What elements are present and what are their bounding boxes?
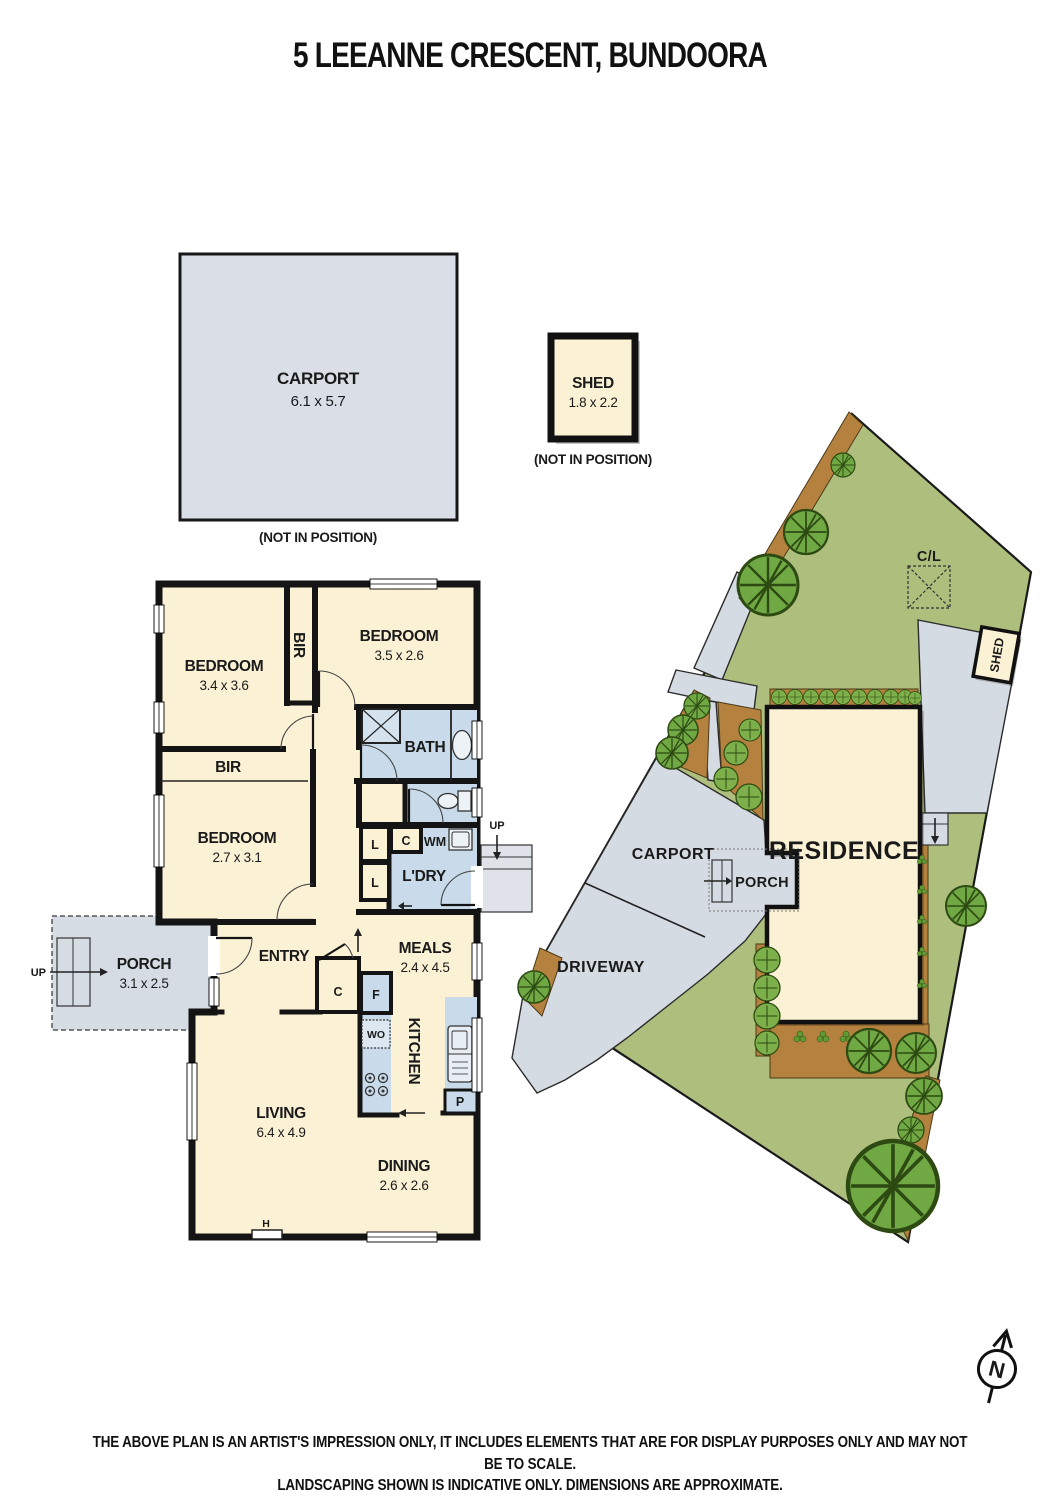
meals-dims: 2.4 x 4.5 xyxy=(400,960,449,975)
page-title: 5 LEEANNE CRESCENT, BUNDOORA xyxy=(106,36,954,76)
floorplan-page: 5 LEEANNE CRESCENT, BUNDOORA xyxy=(0,0,1060,1500)
bush-icon xyxy=(820,690,835,705)
floor-plan: UP xyxy=(31,579,532,1242)
bush-icon xyxy=(739,719,761,741)
tree-icon xyxy=(738,555,798,615)
porch-label: PORCH xyxy=(117,956,172,973)
bush-icon xyxy=(714,767,738,791)
heater-icon xyxy=(252,1230,282,1239)
tree-icon xyxy=(831,453,855,477)
bedroom1-dims: 3.4 x 3.6 xyxy=(199,678,248,693)
entry-cupboard-label: C xyxy=(333,985,342,999)
disclaimer-line2: LANDSCAPING SHOWN IS INDICATIVE ONLY. DI… xyxy=(85,1475,975,1497)
dining-dims: 2.6 x 2.6 xyxy=(379,1178,428,1193)
detached-carport: CARPORT 6.1 x 5.7 (NOT IN POSITION) xyxy=(180,254,457,545)
carport-block-note: (NOT IN POSITION) xyxy=(259,530,377,545)
site-porch-label: PORCH xyxy=(735,875,789,891)
cupboard-label: C xyxy=(401,834,410,848)
meals-label: MEALS xyxy=(399,940,452,957)
bir-horizontal-label: BIR xyxy=(215,759,241,776)
site-carport-label: CARPORT xyxy=(632,846,715,863)
bush-icon xyxy=(724,741,748,765)
bedroom2-dims: 3.5 x 2.6 xyxy=(374,648,423,663)
shed-block-label: SHED xyxy=(572,375,614,392)
living-dims: 6.4 x 4.9 xyxy=(256,1125,305,1140)
toilet-icon xyxy=(438,794,458,809)
tree-icon xyxy=(896,1033,936,1073)
bush-icon xyxy=(868,690,883,705)
bush-icon xyxy=(836,690,851,705)
plan-drawing: CARPORT 6.1 x 5.7 (NOT IN POSITION) SHED… xyxy=(0,0,1060,1500)
living-label: LIVING xyxy=(256,1105,306,1122)
bush-icon xyxy=(852,690,867,705)
site-driveway-label: DRIVEWAY xyxy=(557,959,645,976)
disclaimer-line1: THE ABOVE PLAN IS AN ARTIST'S IMPRESSION… xyxy=(85,1432,975,1475)
site-plan: C/L SHED xyxy=(512,412,1031,1242)
site-shed: SHED xyxy=(973,627,1023,686)
bedroom3-label: BEDROOM xyxy=(198,830,277,847)
wall-oven-label: WO xyxy=(367,1029,385,1041)
disclaimer: THE ABOVE PLAN IS AN ARTIST'S IMPRESSION… xyxy=(85,1432,975,1497)
sink-icon xyxy=(448,1026,472,1082)
tree-icon xyxy=(518,971,550,1003)
bush-icon xyxy=(804,690,819,705)
laundry-up-label: UP xyxy=(489,820,504,832)
dining-label: DINING xyxy=(378,1158,431,1175)
shed-block-dims: 1.8 x 2.2 xyxy=(568,395,617,410)
linen-upper-label: L xyxy=(371,838,379,852)
bush-icon xyxy=(788,690,803,705)
bir-vertical-label: BIR xyxy=(290,632,307,658)
carport-block-label: CARPORT xyxy=(277,369,360,388)
tree-icon xyxy=(848,1141,938,1231)
porch-dims: 3.1 x 2.5 xyxy=(119,976,168,991)
linen-lower-label: L xyxy=(371,876,379,890)
tree-icon xyxy=(946,886,986,926)
laundry-label: L'DRY xyxy=(402,868,447,885)
kitchen-label: KITCHEN xyxy=(405,1018,422,1085)
clothesline-label: C/L xyxy=(917,549,941,565)
carport-block-dims: 6.1 x 5.7 xyxy=(291,393,346,410)
bedroom3-dims: 2.7 x 3.1 xyxy=(212,850,261,865)
bush-icon xyxy=(754,947,780,973)
cistern-icon xyxy=(458,791,471,811)
heater-label: H xyxy=(262,1218,270,1230)
pantry-label: P xyxy=(456,1095,464,1109)
bush-icon xyxy=(736,784,762,810)
tree-icon xyxy=(906,1078,942,1114)
porch-up-label: UP xyxy=(31,967,46,979)
entry-label: ENTRY xyxy=(259,948,310,965)
bush-icon xyxy=(755,1031,779,1055)
bush-icon xyxy=(754,975,780,1001)
bathtub-icon xyxy=(453,731,472,760)
bedroom2-label: BEDROOM xyxy=(360,628,439,645)
tree-icon xyxy=(656,737,688,769)
north-compass: N xyxy=(971,1327,1025,1408)
tree-icon xyxy=(784,510,828,554)
tree-icon xyxy=(898,1117,924,1143)
bush-icon xyxy=(884,690,899,705)
wm-label: WM xyxy=(424,835,446,849)
detached-shed: SHED 1.8 x 2.2 (NOT IN POSITION) xyxy=(534,336,652,467)
entry-door-gap xyxy=(208,936,220,976)
fridge-label: F xyxy=(372,988,380,1002)
bush-icon xyxy=(754,1003,780,1029)
rear-landing xyxy=(481,845,532,912)
site-residence-label: RESIDENCE xyxy=(769,837,919,865)
tree-icon xyxy=(847,1029,891,1073)
bush-icon xyxy=(909,692,922,705)
rear-steps xyxy=(922,813,948,845)
bath-label: BATH xyxy=(405,739,446,756)
bush-icon xyxy=(772,690,787,705)
bedroom1-label: BEDROOM xyxy=(185,658,264,675)
shed-block-note: (NOT IN POSITION) xyxy=(534,452,652,467)
laundry-door-gap xyxy=(471,866,483,908)
